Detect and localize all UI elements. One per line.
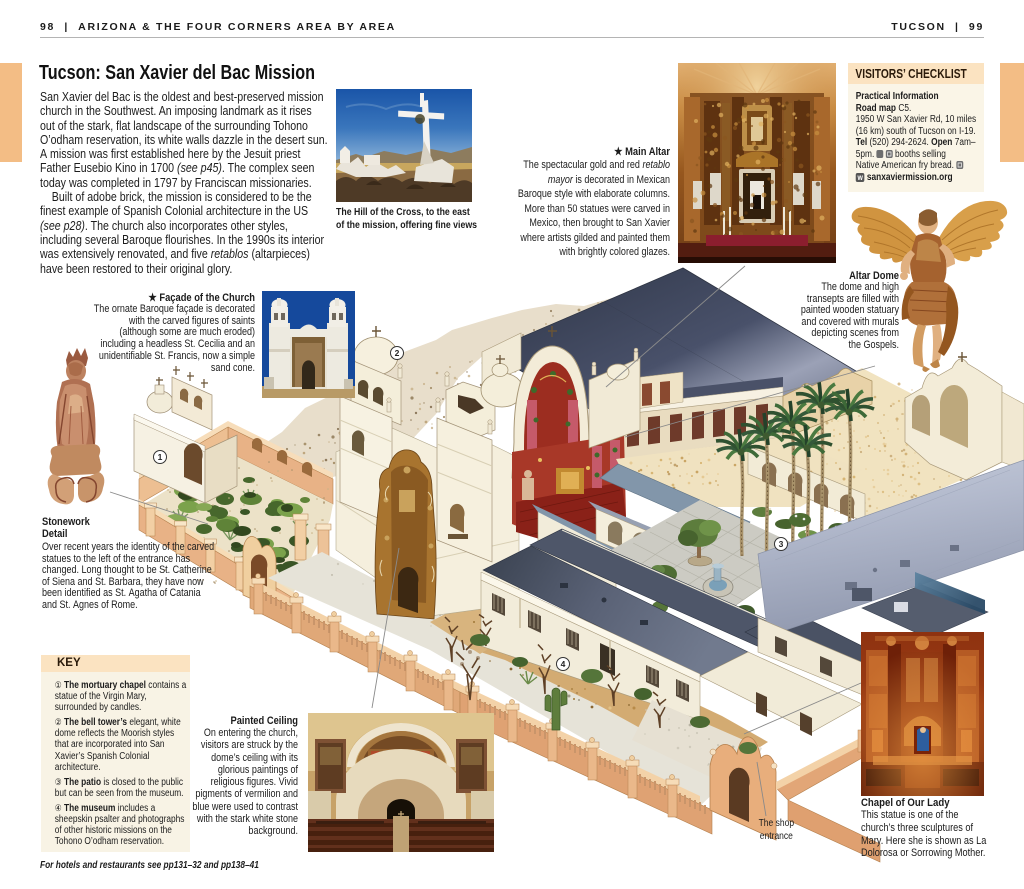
svg-text:2: 2 [395, 348, 400, 358]
svg-text:3: 3 [779, 539, 784, 549]
svg-text:1: 1 [158, 452, 163, 462]
svg-text:4: 4 [561, 659, 566, 669]
